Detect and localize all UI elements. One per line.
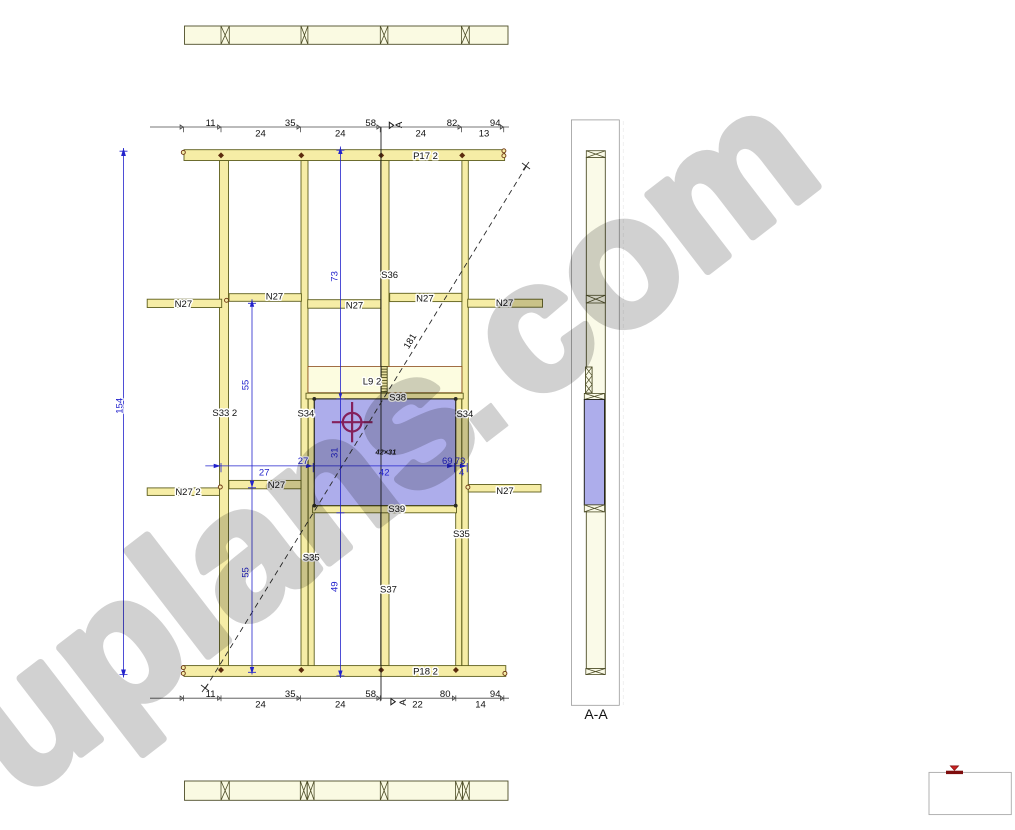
svg-text:58: 58 <box>365 118 376 129</box>
svg-text:S33 2: S33 2 <box>212 408 237 419</box>
svg-text:P18 2: P18 2 <box>413 667 438 678</box>
svg-text:A: A <box>398 699 409 706</box>
svg-text:S36: S36 <box>381 270 398 281</box>
svg-text:N27: N27 <box>266 292 283 303</box>
svg-text:N27: N27 <box>346 301 363 312</box>
svg-text:N27: N27 <box>496 486 513 497</box>
svg-text:35: 35 <box>285 118 296 129</box>
svg-text:24: 24 <box>335 700 346 711</box>
svg-text:55: 55 <box>240 380 251 391</box>
svg-text:13: 13 <box>479 129 490 140</box>
svg-text:24: 24 <box>255 700 266 711</box>
svg-text:N27: N27 <box>175 299 192 310</box>
svg-text:24: 24 <box>416 129 427 140</box>
svg-text:94: 94 <box>490 118 501 129</box>
svg-text:154: 154 <box>115 398 126 414</box>
svg-text:73: 73 <box>330 271 341 282</box>
svg-text:94: 94 <box>490 689 501 700</box>
svg-text:P17 2: P17 2 <box>413 151 438 162</box>
svg-text:11: 11 <box>206 118 216 129</box>
svg-text:A-A: A-A <box>584 706 608 722</box>
svg-text:80: 80 <box>440 689 451 700</box>
svg-text:22: 22 <box>412 700 423 711</box>
svg-text:35: 35 <box>285 689 296 700</box>
svg-text:S35: S35 <box>453 529 470 540</box>
svg-text:14: 14 <box>475 700 486 711</box>
svg-text:58: 58 <box>365 689 376 700</box>
svg-text:24: 24 <box>255 129 266 140</box>
svg-text:S37: S37 <box>380 585 397 596</box>
svg-text:82: 82 <box>447 118 458 129</box>
svg-text:24: 24 <box>335 129 346 140</box>
